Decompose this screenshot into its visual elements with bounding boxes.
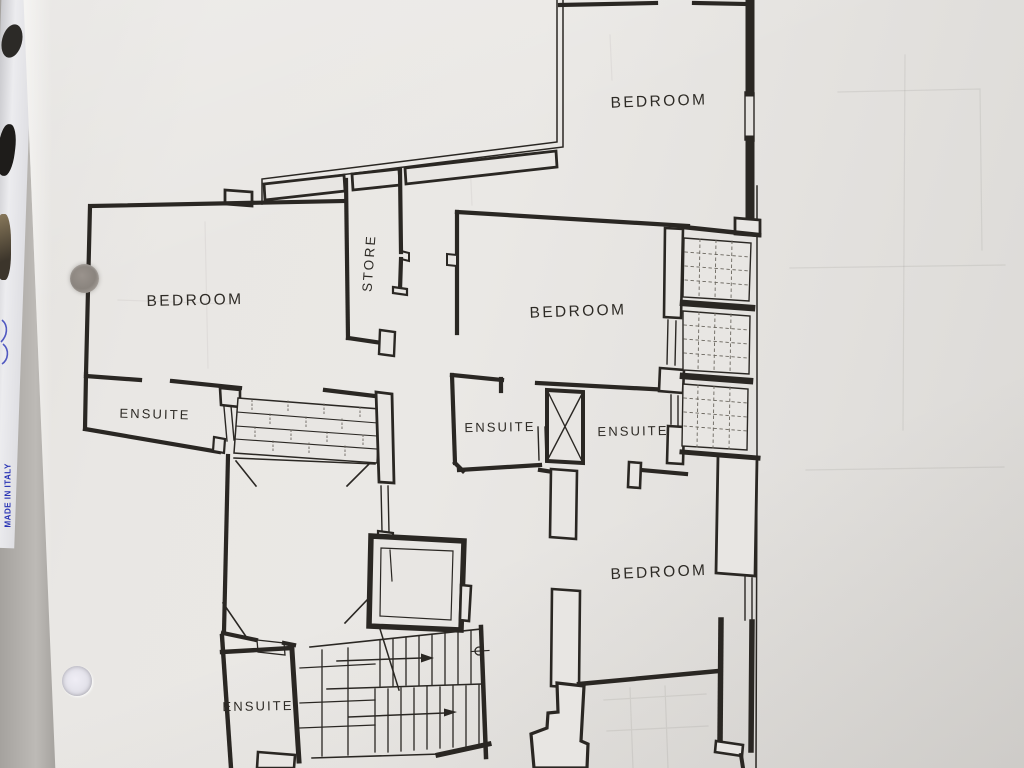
room-label-store: STORE [340,256,398,271]
shaft-box [369,536,471,630]
balcony-bays [682,227,759,458]
staircase [292,627,489,761]
room-label-bedroom-bottom: BEDROOM [611,564,708,582]
middle-bedroom-walls [447,212,688,365]
top-bedroom-walls [560,2,760,236]
inner-room-walls [223,456,375,655]
room-label-bedroom-middle: BEDROOM [530,303,627,321]
hall-door-walls [376,392,394,542]
made-in-italy-text: MADE IN ITALY [4,466,13,528]
room-label-bedroom-left: BEDROOM [147,292,244,310]
wardrobe-hatch-strip [234,390,383,463]
room-label-bedroom-top: BEDROOM [611,93,708,111]
room-label-ensuite-center: ENSUITE [464,420,535,435]
room-label-ensuite-right: ENSUITE [597,424,668,439]
floor-plan-photo: MADE IN ITALY BEDROOM BEDROOM BEDROOM BE… [0,0,1024,768]
punch-hole-bottom [62,666,92,696]
blue-scribble-marks [0,316,20,366]
hall-closet-walls [531,683,588,768]
punch-hole-top [70,264,99,293]
floor-plan-drawing [0,0,1024,768]
room-label-ensuite-left: ENSUITE [119,407,190,422]
top-wall-segments [225,151,557,206]
room-label-ensuite-bottom: ENSUITE [222,699,293,714]
